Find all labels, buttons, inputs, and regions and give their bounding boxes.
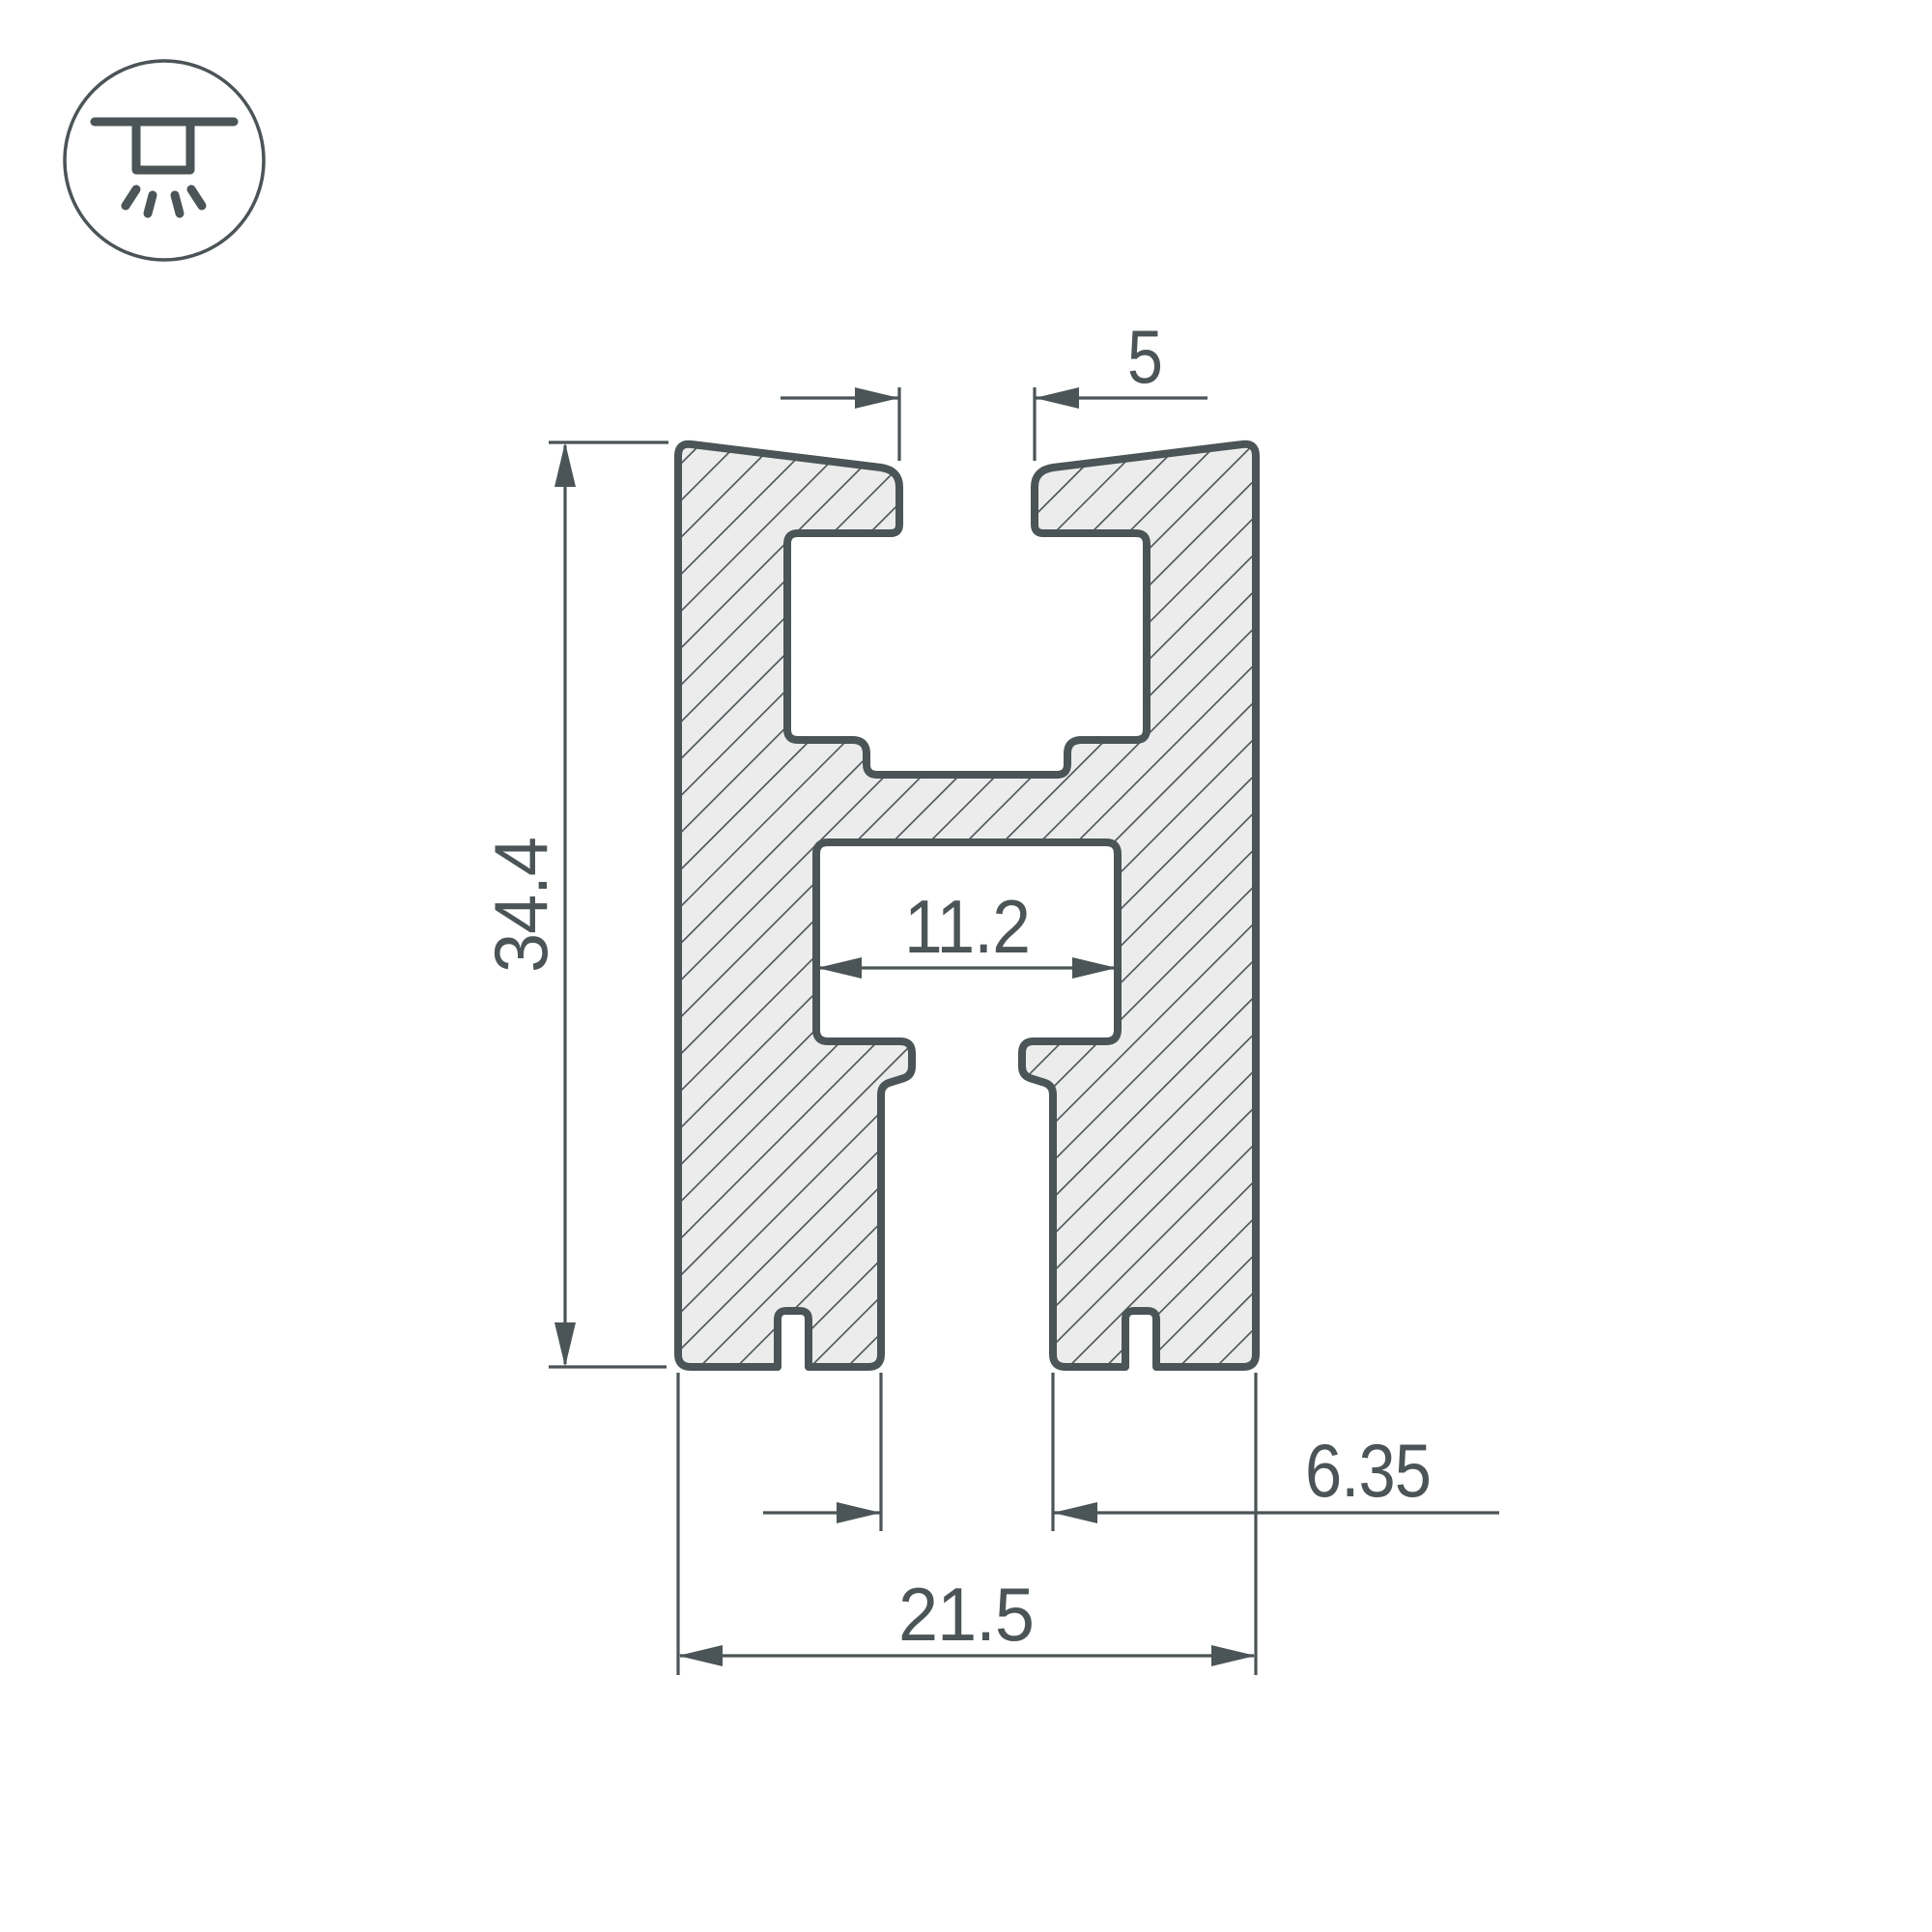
icon-circle: [65, 61, 264, 260]
icon-ray-3: [175, 195, 180, 213]
icon-fixture-box: [136, 124, 190, 170]
arrowhead: [817, 957, 862, 979]
profile-drawing-svg: 5 34.4 11.2 6.35 21.5: [0, 0, 1932, 1932]
arrowhead: [1035, 387, 1079, 409]
recessed-light-icon: [65, 61, 264, 260]
arrowhead: [1072, 957, 1117, 979]
technical-drawing-canvas: 5 34.4 11.2 6.35 21.5: [0, 0, 1932, 1932]
dimension-label-cavity-width: 11.2: [904, 884, 1030, 969]
arrowhead: [554, 442, 576, 487]
dimension-label-channel-width: 6.35: [1305, 1428, 1431, 1513]
arrowhead: [837, 1502, 881, 1523]
arrowhead: [1211, 1645, 1256, 1666]
arrowhead: [855, 387, 899, 409]
arrowhead: [554, 1322, 576, 1367]
icon-ray-1: [126, 189, 136, 206]
arrowhead: [678, 1645, 723, 1666]
dimension-overall-height: [549, 442, 668, 1367]
dimension-label-slot-width: 5: [1127, 314, 1162, 399]
dimension-label-overall-width: 21.5: [898, 1572, 1034, 1657]
arrowhead: [1053, 1502, 1097, 1523]
icon-ray-2: [148, 195, 153, 213]
dimension-label-overall-height: 34.4: [478, 838, 563, 973]
icon-ray-4: [191, 189, 202, 206]
